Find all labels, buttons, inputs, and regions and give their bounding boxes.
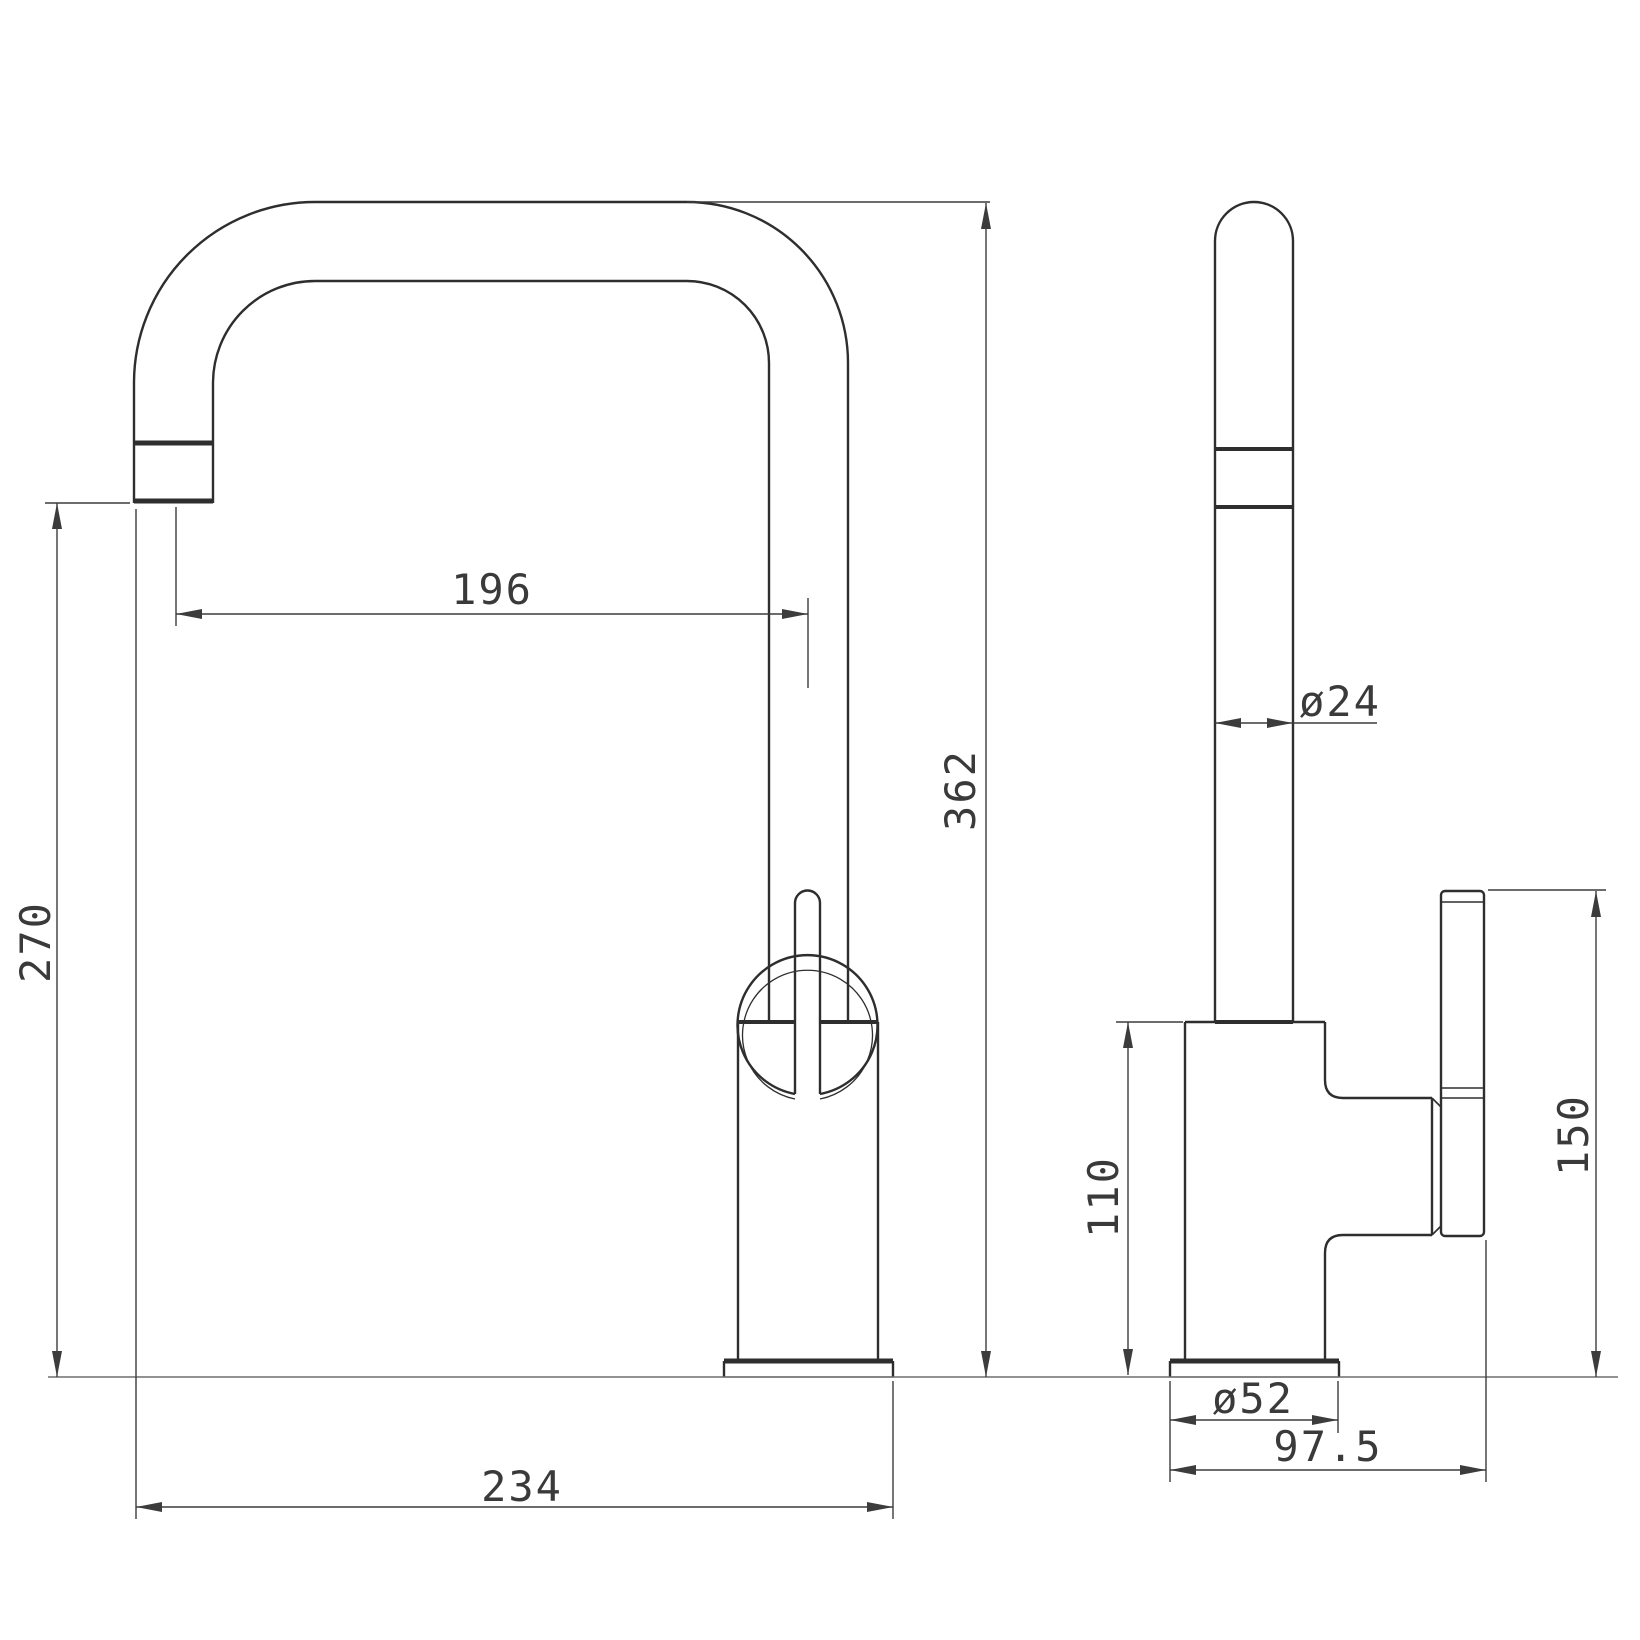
arrowhead-up (1123, 1022, 1133, 1048)
dim-label-362: 362 (936, 749, 985, 831)
arrowhead-down (1591, 1351, 1601, 1377)
arrowhead-left (136, 1502, 162, 1512)
side-port-contour (1325, 1022, 1432, 1361)
arrowhead-right (1460, 1465, 1486, 1475)
arrowhead-down (1123, 1349, 1133, 1375)
riser-pipe-side (1215, 202, 1293, 1022)
dim-label-110: 110 (1079, 1156, 1128, 1238)
arrowhead-right (782, 609, 808, 619)
spout-inner-contour (213, 281, 769, 1022)
dim-label-975: 97.5 (1273, 1422, 1382, 1471)
dim-label-234: 234 (481, 1462, 563, 1511)
dim-overall-height: 362 (687, 202, 991, 1377)
arrowhead-up (52, 503, 62, 529)
dim-234-extensions (136, 509, 893, 1519)
drawing-sheet: 362 270 196 234 (0, 0, 1640, 1640)
arrowhead-up (981, 203, 991, 229)
spout-aerator (134, 443, 213, 501)
arrowhead-left (176, 609, 202, 619)
arrowhead-right (867, 1502, 893, 1512)
arrowhead-left (1215, 718, 1241, 728)
dim-label-150: 150 (1549, 1094, 1598, 1176)
mixer-body-front (724, 1022, 893, 1361)
dim-handle-height: 150 (1488, 890, 1606, 1377)
arrowhead-right (1267, 718, 1293, 728)
pipe-contour (1215, 202, 1293, 1022)
dimensions: 362 270 196 234 (11, 202, 1606, 1519)
dim-overall-width: 234 (136, 509, 893, 1519)
arrowhead-up (1591, 891, 1601, 917)
arrowhead-left (1170, 1415, 1196, 1425)
arrowhead-left (1170, 1465, 1196, 1475)
side-view (1170, 202, 1484, 1377)
mixer-body-side (1170, 1022, 1441, 1361)
lever-ball-outer (737, 955, 877, 1094)
dim-label-196: 196 (451, 565, 533, 614)
dim-label-270: 270 (11, 901, 60, 983)
port-taper-lines (1432, 1098, 1441, 1235)
dim-label-o24: ø24 (1299, 677, 1381, 726)
dim-body-height: 110 (1079, 1022, 1183, 1375)
handle-plate-detail-lines (1441, 902, 1484, 1098)
dim-label-o52: ø52 (1212, 1374, 1294, 1423)
handle-paddle-side (1441, 891, 1484, 1236)
dim-spout-reach: 196 (176, 507, 808, 688)
handle-lever-front (737, 891, 877, 1100)
front-view (134, 202, 893, 1377)
arrowhead-down (981, 1351, 991, 1377)
handle-plate (1441, 891, 1484, 1236)
pipe-band-lines (1215, 449, 1293, 507)
lever-rod (795, 891, 820, 1095)
arrowhead-down (52, 1351, 62, 1377)
faucet-dimension-drawing: 362 270 196 234 (0, 0, 1640, 1640)
dim-pipe-diameter: ø24 (1215, 677, 1381, 728)
dim-spout-clearance: 270 (11, 503, 130, 1377)
